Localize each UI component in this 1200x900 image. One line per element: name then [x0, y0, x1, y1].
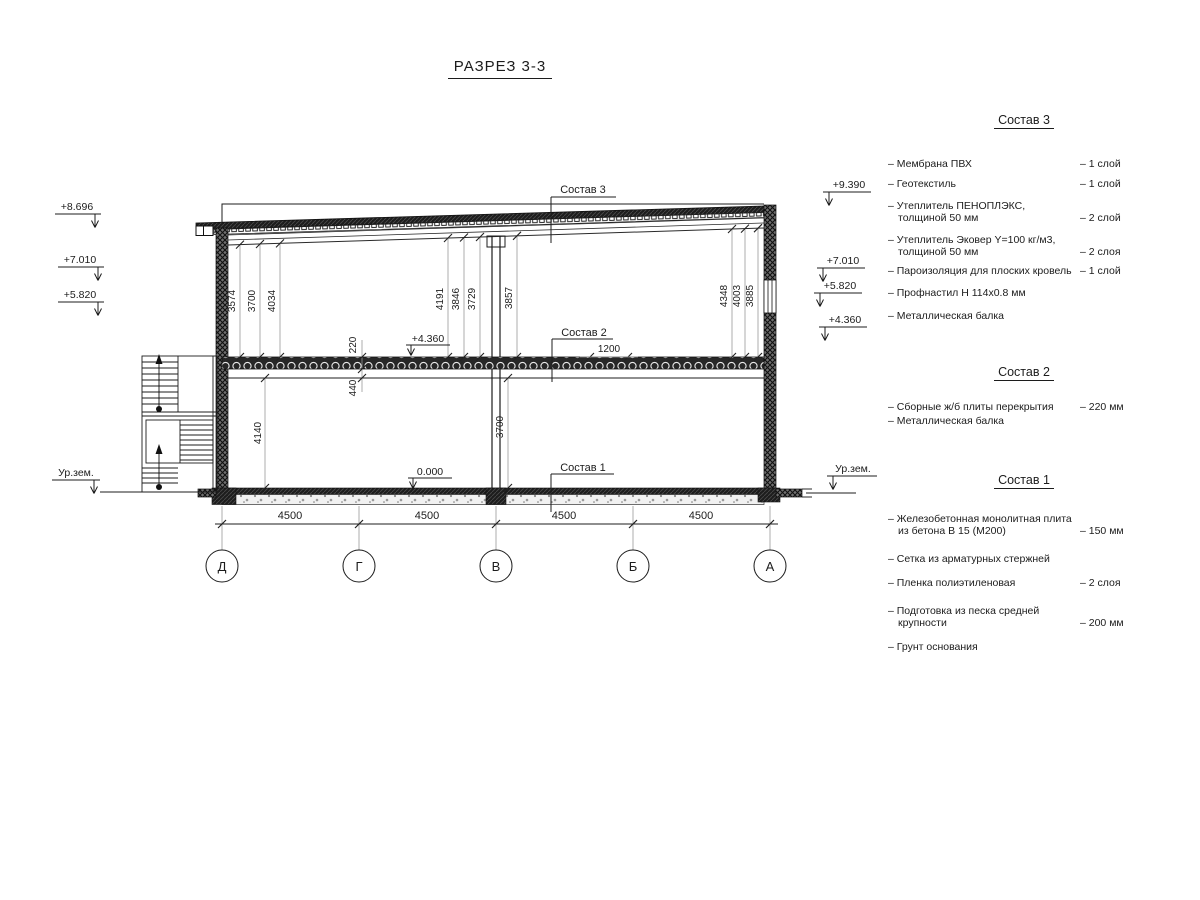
elevation-mark: +4.360 [819, 314, 867, 341]
elevation-mark: +4.360 [406, 333, 450, 356]
svg-text:+4.360: +4.360 [412, 333, 445, 345]
svg-text:+8.696: +8.696 [61, 201, 94, 213]
svg-text:Г: Г [355, 559, 362, 574]
drawing-sheet: РАЗРЕЗ 3-3 [0, 0, 1200, 900]
footing-center [486, 488, 506, 505]
legend-item: – Мембрана ПВХ – 1 слой [888, 158, 1160, 170]
elevation-mark: +8.696 [55, 201, 101, 228]
svg-text:А: А [766, 559, 775, 574]
elevation-mark: +7.010 [817, 255, 865, 282]
legend-item: – Профнастил Н 114х0.8 мм [888, 287, 1160, 299]
svg-text:Состав 3: Состав 3 [560, 184, 606, 196]
svg-text:Д: Д [218, 559, 227, 574]
svg-text:440: 440 [348, 379, 359, 396]
roof-gutter-detail [196, 226, 213, 236]
elevation-marks-left: +8.696 +7.010 +5.820 Ур.зем. [52, 201, 104, 494]
svg-text:4034: 4034 [267, 289, 278, 312]
legend-item: – Утеплитель ПЕНОПЛЭКС,толщиной 50 мм – … [888, 200, 1160, 224]
svg-text:3885: 3885 [745, 284, 756, 307]
svg-text:3729: 3729 [467, 287, 478, 310]
svg-text:Б: Б [629, 559, 638, 574]
legend-item: – Грунт основания [888, 641, 1160, 653]
elevation-mark: 0.000 [408, 466, 452, 489]
elevation-mark: +5.820 [814, 280, 862, 307]
svg-text:4003: 4003 [732, 284, 743, 307]
dimension-ticks [236, 224, 762, 361]
upper-dimensions [236, 224, 762, 361]
legend-heading-comp3: Состав 3 [888, 114, 1160, 129]
elevation-mark: Ур.зем. [52, 467, 100, 494]
svg-text:4500: 4500 [278, 510, 302, 522]
svg-text:4191: 4191 [435, 287, 446, 310]
svg-text:+5.820: +5.820 [824, 280, 857, 292]
elevation-marks-inner: +4.360 0.000 [406, 333, 452, 489]
svg-text:+9.390: +9.390 [833, 179, 866, 191]
legend-item: – Металлическая балка [888, 415, 1160, 427]
elevation-mark: +7.010 [58, 254, 104, 281]
ledge-right [776, 489, 802, 497]
legend-item: – Пленка полиэтиленовая – 2 слоя [888, 577, 1160, 589]
legend-item: – Утеплитель Эковер Y=100 кг/м3,толщиной… [888, 234, 1160, 258]
stair-tower [142, 354, 217, 492]
svg-text:1200: 1200 [598, 344, 621, 355]
legend-heading-comp1: Состав 1 [888, 474, 1160, 489]
section-drawing: 3574 3700 4034 4191 3846 3729 3857 4348 … [0, 0, 1200, 900]
svg-text:3846: 3846 [451, 287, 462, 310]
svg-text:4500: 4500 [689, 510, 713, 522]
window-right-wall [764, 280, 776, 313]
legend-item: – Пароизоляция для плоских кровель – 1 с… [888, 265, 1160, 277]
svg-text:+5.820: +5.820 [64, 289, 97, 301]
svg-text:+4.360: +4.360 [829, 314, 862, 326]
legend-item: – Геотекстиль – 1 слой [888, 178, 1160, 190]
svg-text:3700: 3700 [495, 415, 506, 438]
svg-text:Состав 2: Состав 2 [561, 327, 607, 339]
svg-text:4500: 4500 [552, 510, 576, 522]
svg-text:0.000: 0.000 [417, 466, 443, 478]
legend-item: – Подготовка из песка среднейкрупности –… [888, 605, 1160, 629]
axis-dimension-string: 4500 4500 4500 4500 Д Г В Б А [206, 506, 786, 582]
legend-item: – Металлическая балка [888, 310, 1160, 322]
svg-text:3857: 3857 [504, 286, 515, 309]
svg-text:Состав 1: Состав 1 [560, 462, 606, 474]
legend-item: – Сетка из арматурных стержней [888, 553, 1160, 565]
svg-text:В: В [492, 559, 501, 574]
svg-text:4348: 4348 [719, 284, 730, 307]
elevation-marks-right: +9.390 +7.010 +5.820 +4.360 Ур.зем. [814, 179, 877, 490]
elevation-mark: Ур.зем. [827, 463, 877, 490]
svg-text:4500: 4500 [415, 510, 439, 522]
wall-right [764, 205, 776, 490]
axis-letters: Д Г В Б А [218, 559, 775, 574]
svg-text:220: 220 [348, 336, 359, 353]
elevation-mark: +9.390 [823, 179, 871, 206]
svg-text:3574: 3574 [227, 289, 238, 312]
legend-item: – Сборные ж/б плиты перекрытия – 220 мм [888, 401, 1160, 413]
svg-text:Ур.зем.: Ур.зем. [58, 467, 94, 479]
svg-text:+7.010: +7.010 [827, 255, 860, 267]
elevation-mark: +5.820 [58, 289, 104, 316]
floor-slab-level2 [222, 357, 764, 369]
svg-text:+7.010: +7.010 [64, 254, 97, 266]
legend-heading-comp2: Состав 2 [888, 366, 1160, 381]
svg-text:4140: 4140 [253, 421, 264, 444]
legend-item: – Железобетонная монолитная плитаиз бето… [888, 513, 1160, 537]
svg-text:3700: 3700 [247, 289, 258, 312]
svg-text:Ур.зем.: Ур.зем. [835, 463, 871, 475]
